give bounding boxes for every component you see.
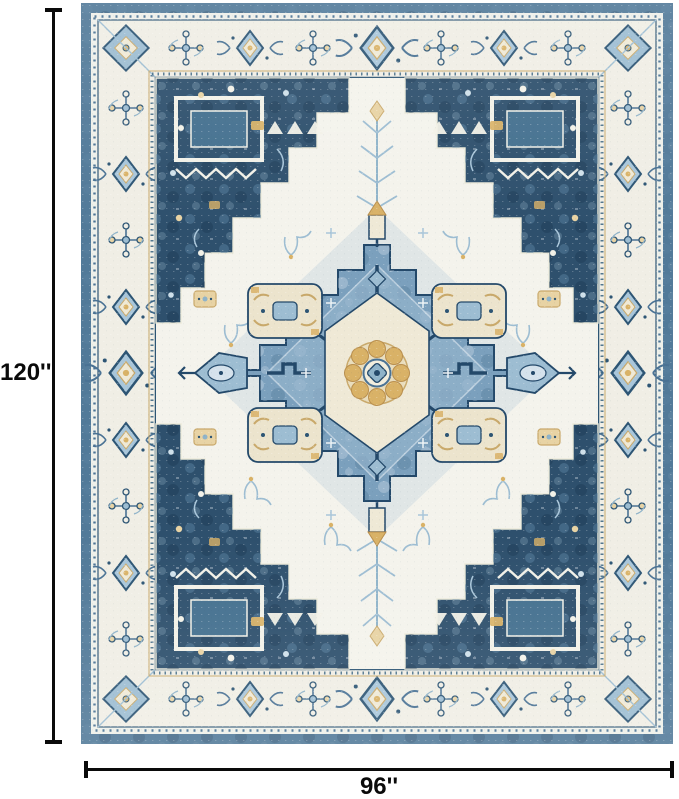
rug-image (81, 3, 673, 744)
width-dimension-line (85, 768, 673, 771)
product-image-canvas: 120'' 96'' (0, 0, 679, 799)
dimension-end-cap-top (45, 8, 62, 12)
dimension-end-cap-left (84, 761, 88, 778)
height-dimension-line (52, 10, 55, 741)
dimension-end-cap-right (670, 761, 674, 778)
width-dimension-label: 96'' (85, 775, 673, 799)
dimension-end-cap-bottom (45, 740, 62, 744)
height-dimension-label: 120'' (0, 361, 48, 385)
